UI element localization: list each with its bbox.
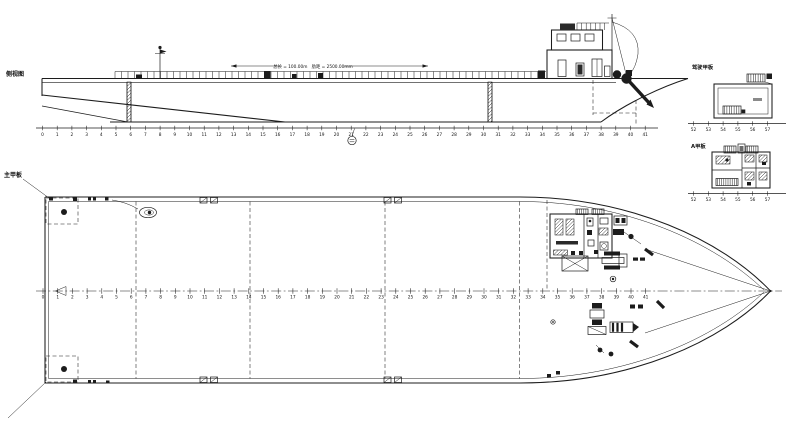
- svg-text:18: 18: [305, 295, 311, 301]
- svg-text:15: 15: [261, 295, 267, 301]
- chock: [200, 198, 207, 204]
- svg-text:13: 13: [231, 132, 237, 138]
- chock: [395, 198, 402, 204]
- svg-text:35: 35: [555, 295, 561, 301]
- chock: [211, 198, 218, 204]
- svg-text:27: 27: [437, 295, 443, 301]
- svg-text:9: 9: [173, 132, 176, 138]
- roof-railing: [577, 23, 609, 30]
- svg-text:12: 12: [217, 295, 223, 301]
- svg-text:15: 15: [260, 132, 266, 138]
- svg-text:28: 28: [452, 295, 458, 301]
- svg-text:34: 34: [540, 295, 546, 301]
- svg-text:12: 12: [216, 132, 222, 138]
- bridge-deck-title: 驾驶甲板: [692, 63, 714, 71]
- hold-ladder-aft: [488, 82, 492, 122]
- svg-text:36: 36: [569, 132, 575, 138]
- svg-text:26: 26: [422, 295, 428, 301]
- svg-text:33: 33: [525, 295, 531, 301]
- svg-text:54: 54: [720, 197, 726, 203]
- svg-text:1: 1: [56, 295, 59, 301]
- svg-text:24: 24: [393, 295, 399, 301]
- davit-arm: [628, 80, 651, 105]
- radiator: [716, 179, 738, 186]
- svg-text:10: 10: [187, 295, 193, 301]
- svg-text:19: 19: [319, 132, 325, 138]
- svg-text:28: 28: [451, 132, 457, 138]
- svg-text:34: 34: [540, 132, 546, 138]
- svg-text:52: 52: [691, 127, 697, 133]
- deck-railing: [115, 72, 546, 79]
- deckhouse-plan: [550, 209, 612, 258]
- profile-frame-ruler: 0123456789101112131415161718192021222324…: [36, 126, 658, 138]
- hull-profile-outline: [42, 79, 688, 127]
- svg-text:3: 3: [86, 295, 89, 301]
- svg-text:39: 39: [613, 132, 619, 138]
- svg-text:52: 52: [691, 197, 697, 203]
- svg-text:2: 2: [71, 132, 74, 138]
- svg-text:7: 7: [144, 132, 147, 138]
- svg-text:30: 30: [481, 132, 487, 138]
- profile-view-title: 侧视图: [6, 70, 24, 78]
- wheelhouse-window: [571, 34, 580, 41]
- stair-hatch: [723, 106, 745, 114]
- windlass-lower: [551, 303, 643, 356]
- svg-text:11: 11: [201, 132, 207, 138]
- svg-text:38: 38: [598, 132, 604, 138]
- svg-text:10: 10: [187, 132, 193, 138]
- svg-text:55: 55: [735, 127, 741, 133]
- svg-text:11: 11: [202, 295, 208, 301]
- svg-text:53: 53: [706, 127, 712, 133]
- bridge-deck-detail: 驾驶甲板 525354555657: [688, 63, 786, 133]
- svg-text:41: 41: [642, 132, 648, 138]
- svg-text:33: 33: [525, 132, 531, 138]
- svg-text:16: 16: [275, 132, 281, 138]
- title-leader: [23, 179, 49, 198]
- casing-hatch: [747, 74, 772, 85]
- svg-text:20: 20: [334, 132, 340, 138]
- svg-text:37: 37: [584, 132, 590, 138]
- svg-text:4: 4: [100, 132, 103, 138]
- a-deck-title: A甲板: [691, 142, 706, 150]
- svg-text:40: 40: [628, 295, 634, 301]
- svg-text:18: 18: [304, 132, 310, 138]
- a-deck-detail: A甲板: [688, 142, 786, 203]
- svg-text:1: 1: [56, 132, 59, 138]
- svg-text:37: 37: [584, 295, 590, 301]
- chock: [384, 198, 391, 204]
- svg-text:41: 41: [643, 295, 649, 301]
- svg-text:17: 17: [290, 295, 296, 301]
- corner-leader: [8, 382, 46, 418]
- mooring-corner-top-left: [46, 197, 109, 224]
- svg-text:13: 13: [231, 295, 237, 301]
- lower-tier-door: [558, 60, 566, 77]
- sanitary-fixtures: [587, 218, 608, 254]
- svg-text:29: 29: [467, 295, 473, 301]
- hold-ladder-fore: [127, 82, 131, 122]
- plan-frame-ruler: 0123456789101112131415161718192021222324…: [42, 288, 649, 300]
- svg-text:39: 39: [614, 295, 620, 301]
- svg-text:6: 6: [129, 132, 132, 138]
- svg-text:7: 7: [145, 295, 148, 301]
- svg-text:0: 0: [42, 295, 45, 301]
- hull-plan-outline: [45, 197, 772, 383]
- svg-text:25: 25: [408, 295, 414, 301]
- svg-text:31: 31: [495, 132, 501, 138]
- svg-text:32: 32: [510, 132, 516, 138]
- svg-text:22: 22: [364, 295, 370, 301]
- bow-fan-line: [645, 291, 771, 333]
- svg-text:26: 26: [422, 132, 428, 138]
- bow-fan-line: [645, 249, 771, 291]
- svg-text:4: 4: [100, 295, 103, 301]
- dimension-note: 总长 = 100.00m 肋距 = 2500.00mm: [273, 63, 353, 70]
- chock: [395, 377, 402, 383]
- svg-text:31: 31: [496, 295, 502, 301]
- berths: [554, 219, 584, 255]
- svg-text:5: 5: [115, 295, 118, 301]
- svg-text:29: 29: [466, 132, 472, 138]
- svg-text:23: 23: [378, 295, 384, 301]
- chock: [200, 377, 207, 383]
- svg-text:19: 19: [320, 295, 326, 301]
- drawing-canvas: 侧视图: [0, 0, 800, 424]
- svg-text:8: 8: [159, 295, 162, 301]
- svg-text:57: 57: [765, 127, 771, 133]
- svg-text:20: 20: [334, 295, 340, 301]
- svg-text:54: 54: [720, 127, 726, 133]
- svg-text:56: 56: [750, 197, 756, 203]
- svg-text:55: 55: [735, 197, 741, 203]
- room-label-smudge: [753, 98, 762, 101]
- mast-flag: [160, 50, 167, 54]
- svg-text:5: 5: [115, 132, 118, 138]
- plan-view-title: 主甲板: [4, 171, 23, 179]
- mooring-corner-bottom-left: [46, 356, 110, 384]
- svg-text:3: 3: [85, 132, 88, 138]
- svg-text:14: 14: [246, 132, 252, 138]
- plan-view: 主甲板 012345678910111213141516171819202122…: [4, 171, 782, 418]
- profile-view: 侧视图: [6, 14, 688, 145]
- deck-chocks: [200, 198, 560, 383]
- svg-text:40: 40: [628, 132, 634, 138]
- svg-text:30: 30: [481, 295, 487, 301]
- svg-text:2: 2: [71, 295, 74, 301]
- aft-mast-davit: [608, 14, 655, 108]
- svg-text:17: 17: [290, 132, 296, 138]
- wheelhouse-window: [585, 34, 594, 41]
- wheelhouse-window: [557, 34, 566, 41]
- deckhouse-profile: [547, 23, 612, 79]
- svg-text:57: 57: [765, 197, 771, 203]
- svg-text:53: 53: [706, 197, 712, 203]
- davit-sheave: [613, 70, 621, 78]
- svg-text:14: 14: [246, 295, 252, 301]
- svg-text:32: 32: [511, 295, 517, 301]
- room-label-smudge: [556, 241, 578, 245]
- svg-text:21: 21: [349, 295, 355, 301]
- svg-text:38: 38: [599, 295, 605, 301]
- svg-text:24: 24: [393, 132, 399, 138]
- svg-text:9: 9: [174, 295, 177, 301]
- svg-text:16: 16: [275, 295, 281, 301]
- svg-text:36: 36: [569, 295, 575, 301]
- windlass-upper: [562, 216, 645, 282]
- mooring-reel: [112, 200, 157, 218]
- bridge-deck-ruler: 525354555657: [688, 121, 786, 133]
- svg-text:35: 35: [554, 132, 560, 138]
- svg-text:22: 22: [363, 132, 369, 138]
- svg-text:23: 23: [378, 132, 384, 138]
- ship-drawing-sheet: 侧视图: [0, 0, 800, 424]
- svg-text:56: 56: [750, 127, 756, 133]
- svg-text:25: 25: [407, 132, 413, 138]
- svg-text:0: 0: [41, 132, 44, 138]
- svg-text:27: 27: [437, 132, 443, 138]
- capstan: [610, 322, 639, 333]
- a-deck-ruler: 525354555657: [688, 191, 786, 203]
- dimension-line: 总长 = 100.00m 肋距 = 2500.00mm: [231, 63, 428, 70]
- svg-text:6: 6: [130, 295, 133, 301]
- svg-text:8: 8: [159, 132, 162, 138]
- bulkhead-lines: [136, 200, 547, 379]
- wheelhouse-name-plate: [560, 24, 575, 31]
- chock: [211, 377, 218, 383]
